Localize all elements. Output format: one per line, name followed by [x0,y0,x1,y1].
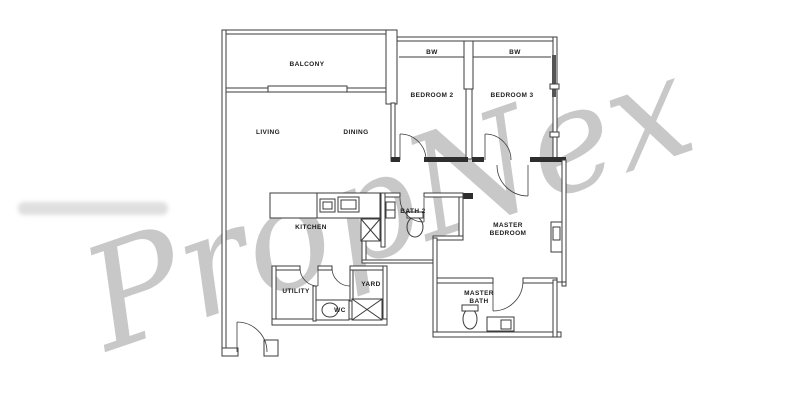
balcony-sliding-door [268,86,347,92]
room-label-bedroom2: BEDROOM 2 [411,92,454,100]
window-sill [550,84,559,89]
room-label-wc: WC [334,307,346,315]
room-label-bw-left: BW [426,49,438,57]
room-label-living: LIVING [256,129,280,137]
room-label-utility: UTILITY [282,288,309,296]
room-label-yard: YARD [361,281,380,289]
room-label-master-bedroom: MASTER BEDROOM [481,222,535,238]
yard-door [332,268,350,286]
entrance-door [237,322,267,352]
window-sill [550,132,559,137]
room-label-dining: DINING [343,129,368,137]
room-label-bedroom3: BEDROOM 3 [491,92,534,100]
room-label-bath2: BATH 2 [400,208,425,216]
window-frame [552,55,556,97]
entrance-walls [222,340,278,356]
corridor-walls [362,260,435,263]
bath2-walls [381,193,463,247]
room-label-balcony: BALCONY [290,61,325,69]
room-label-kitchen: KITCHEN [295,224,327,232]
bedroom2-door [400,134,426,160]
master-bath-toilet [463,309,477,329]
utility-door [300,268,318,286]
master-bedroom-door [497,165,528,196]
bedroom3-door [485,134,511,160]
room-label-bw-right: BW [509,49,521,57]
floorplan-canvas: PropNex [0,0,800,414]
master-bath-walls [433,238,561,337]
room-label-master-bath: MASTER BATH [456,290,502,306]
